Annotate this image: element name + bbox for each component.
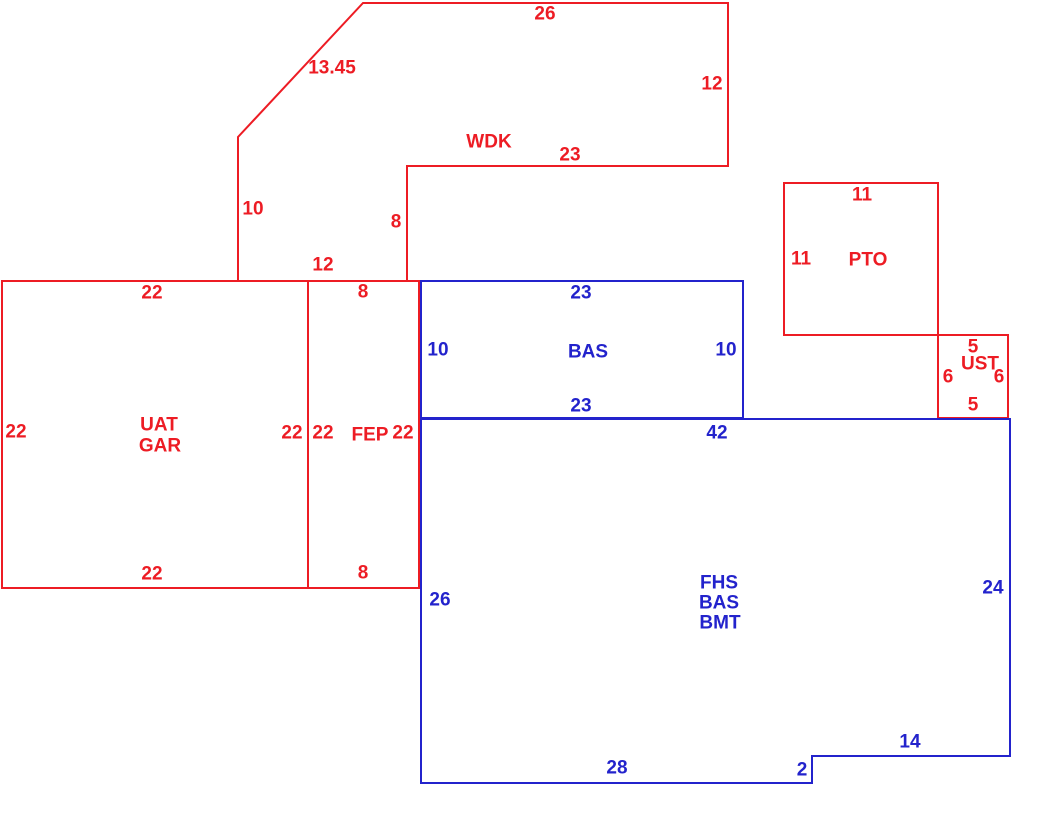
wdk-dim-bottom-left: 12 [312,255,333,276]
ust-dim-right: 6 [994,367,1005,388]
fhs-dim-bottom: 28 [606,758,627,779]
bas-dim-right: 10 [715,340,736,361]
wdk-dim-inner-right: 8 [391,212,402,233]
uatgar-dim-right: 22 [281,423,302,444]
pto-area-label: PTO [849,250,888,271]
uatgar-area-line1: UAT [140,415,178,436]
wdk-dim-bottom: 23 [559,145,580,166]
uatgar-dim-bottom: 22 [141,564,162,585]
bas-dim-bottom: 23 [570,396,591,417]
pto-dim-top: 11 [852,185,873,206]
fep-dim-top: 8 [358,282,369,303]
pto-dim-left: 11 [791,249,812,270]
uatgar-area-line2: GAR [139,436,182,457]
wdk-dim-top: 26 [534,4,555,25]
wdk-area-label: WDK [466,132,512,153]
sketch-canvas: 2613.4512WDK23108121111PTO5UST6652222UAT… [0,0,1040,821]
bas-dim-top: 23 [570,283,591,304]
ust-dim-left: 6 [943,367,954,388]
wdk-dim-right: 12 [701,74,722,95]
fhs-area-line2: BAS [699,593,739,614]
fhs-dim-right: 24 [982,578,1004,599]
uatgar-dim-left: 22 [5,422,26,443]
uatgar-dim-top: 22 [141,283,162,304]
fhs-dim-left: 26 [429,590,450,611]
fhs-dim-step-bottom: 14 [899,732,921,753]
fhs-area-line3: BMT [699,613,741,634]
wdk-dim-left: 10 [242,199,263,220]
fep-dim-bottom: 8 [358,563,369,584]
fhs-area-line1: FHS [700,573,738,594]
fep-dim-left: 22 [312,423,333,444]
bas-area-label: BAS [568,342,608,363]
fep-area-label: FEP [352,425,389,446]
wdk-dim-diagonal: 13.45 [308,58,356,79]
bas-dim-left: 10 [427,340,448,361]
ust-dim-bottom: 5 [968,395,979,416]
fhs-dim-top: 42 [706,423,727,444]
fhs-dim-step-side: 2 [797,760,808,781]
fep-dim-right: 22 [392,423,413,444]
floor-plan-svg: 2613.4512WDK23108121111PTO5UST6652222UAT… [0,0,1040,821]
